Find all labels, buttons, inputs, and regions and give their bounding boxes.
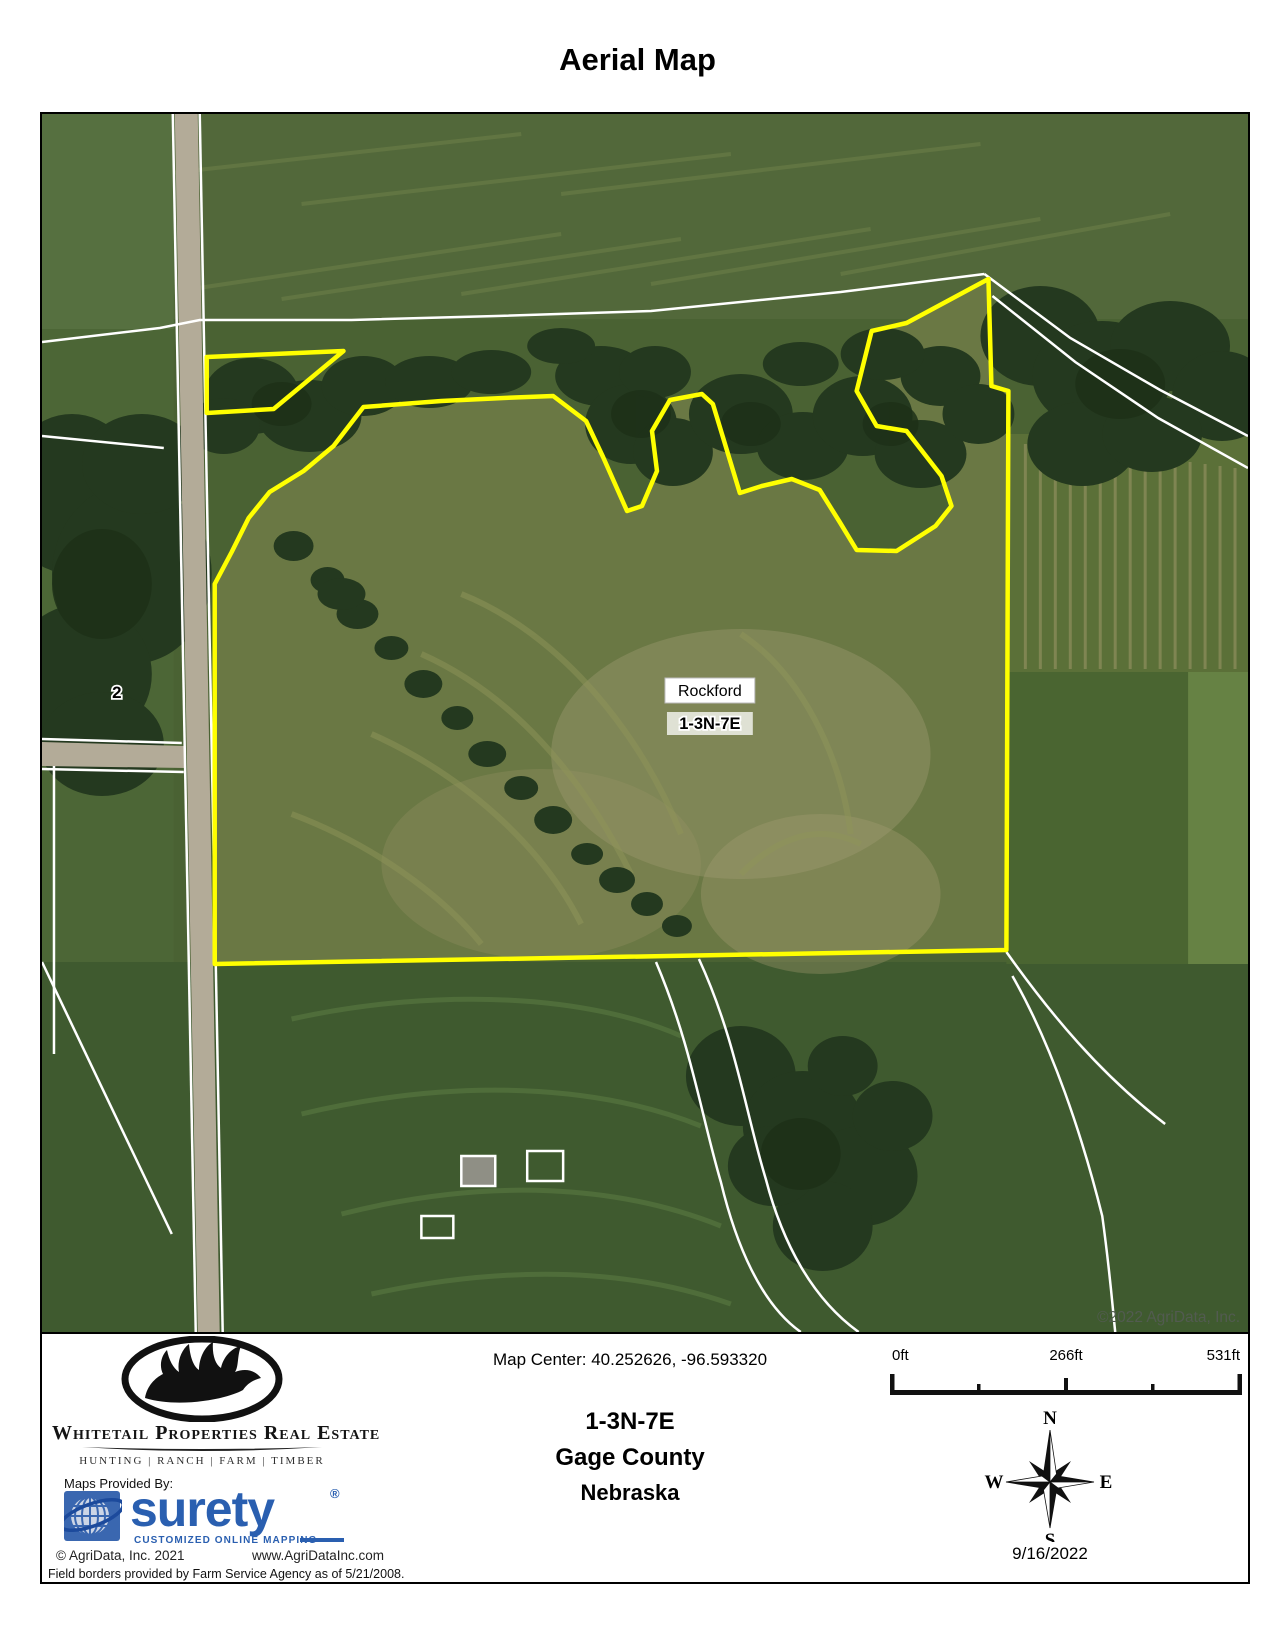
- page-title: Aerial Map: [0, 42, 1275, 78]
- compass-east-label: E: [1100, 1472, 1113, 1493]
- scale-label-middle: 266ft: [1049, 1347, 1082, 1364]
- compass-south-label: S: [1045, 1530, 1056, 1542]
- location-state: Nebraska: [580, 1480, 679, 1506]
- field-borders-disclaimer: Field borders provided by Farm Service A…: [48, 1567, 404, 1581]
- scale-label-end: 531ft: [1207, 1347, 1240, 1364]
- map-label-township: 1-3N-7E: [667, 712, 753, 735]
- map-label-rockford: Rockford: [665, 678, 755, 703]
- map-center-coordinates: Map Center: 40.252626, -96.593320: [493, 1350, 767, 1370]
- map-label-parcel-number: 2: [112, 683, 121, 702]
- surety-tagline-bar: [300, 1538, 344, 1542]
- whitetail-brand-block: Whitetail Properties Real Estate HUNTING…: [52, 1336, 352, 1467]
- location-township: 1-3N-7E: [585, 1408, 674, 1436]
- whitetail-name: Whitetail Properties Real Estate: [52, 1422, 352, 1445]
- whitetail-tagline: HUNTING | RANCH | FARM | TIMBER: [52, 1455, 352, 1467]
- surety-globe-icon: [64, 1491, 122, 1543]
- scale-label-start: 0ft: [892, 1347, 909, 1364]
- swoosh-divider: [77, 1446, 327, 1454]
- svg-text:1-3N-7E: 1-3N-7E: [679, 715, 740, 733]
- scale-bar: [890, 1364, 1242, 1404]
- map-sheet: Rockford 1-3N-7E 2 ©2022 AgriData, Inc.: [40, 112, 1250, 1584]
- surety-tagline: CUSTOMIZED ONLINE MAPPING: [134, 1535, 317, 1546]
- map-footer: Whitetail Properties Real Estate HUNTING…: [42, 1332, 1248, 1582]
- compass-west-label: W: [985, 1472, 1004, 1493]
- agridata-copyright: © AgriData, Inc. 2021: [56, 1548, 185, 1563]
- map-copyright: ©2022 AgriData, Inc.: [1097, 1309, 1240, 1326]
- surety-logo-text: surety: [130, 1484, 274, 1534]
- location-county: Gage County: [555, 1444, 704, 1472]
- svg-text:Rockford: Rockford: [678, 683, 742, 700]
- compass-rose: N S W E: [970, 1402, 1130, 1542]
- surety-registered-mark: ®: [330, 1486, 340, 1501]
- aerial-map-svg: Rockford 1-3N-7E 2 ©2022 AgriData, Inc.: [42, 114, 1248, 1332]
- compass-north-label: N: [1043, 1408, 1057, 1429]
- map-date: 9/16/2022: [1012, 1544, 1088, 1564]
- aerial-map-image: Rockford 1-3N-7E 2 ©2022 AgriData, Inc.: [42, 114, 1248, 1332]
- agridata-url: www.AgriDataInc.com: [252, 1548, 384, 1563]
- whitetail-antler-logo-icon: [117, 1336, 287, 1422]
- aerial-map-page: Aerial Map: [0, 0, 1275, 1650]
